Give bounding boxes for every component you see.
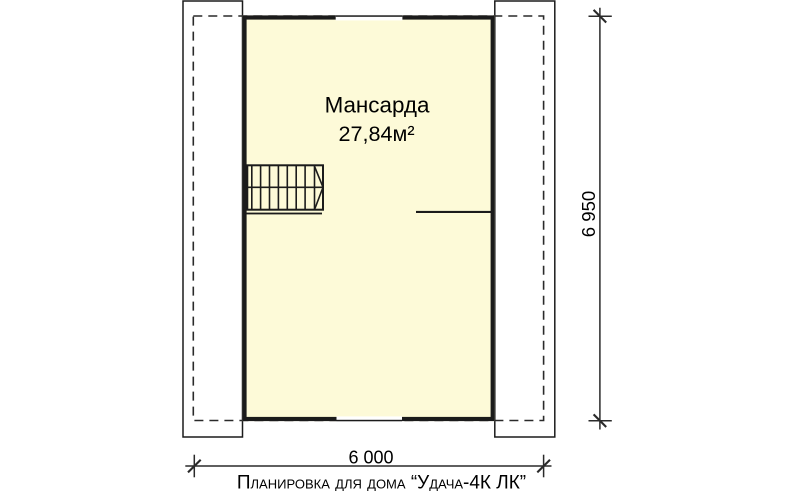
svg-text:6 950: 6 950: [578, 191, 599, 238]
svg-text:6 000: 6 000: [348, 447, 393, 467]
svg-text:27,84м²: 27,84м²: [338, 121, 414, 146]
svg-text:Планировка для дома “Удача-4К: Планировка для дома “Удача-4К ЛК”: [237, 473, 526, 494]
svg-text:Мансарда: Мансарда: [325, 93, 430, 118]
